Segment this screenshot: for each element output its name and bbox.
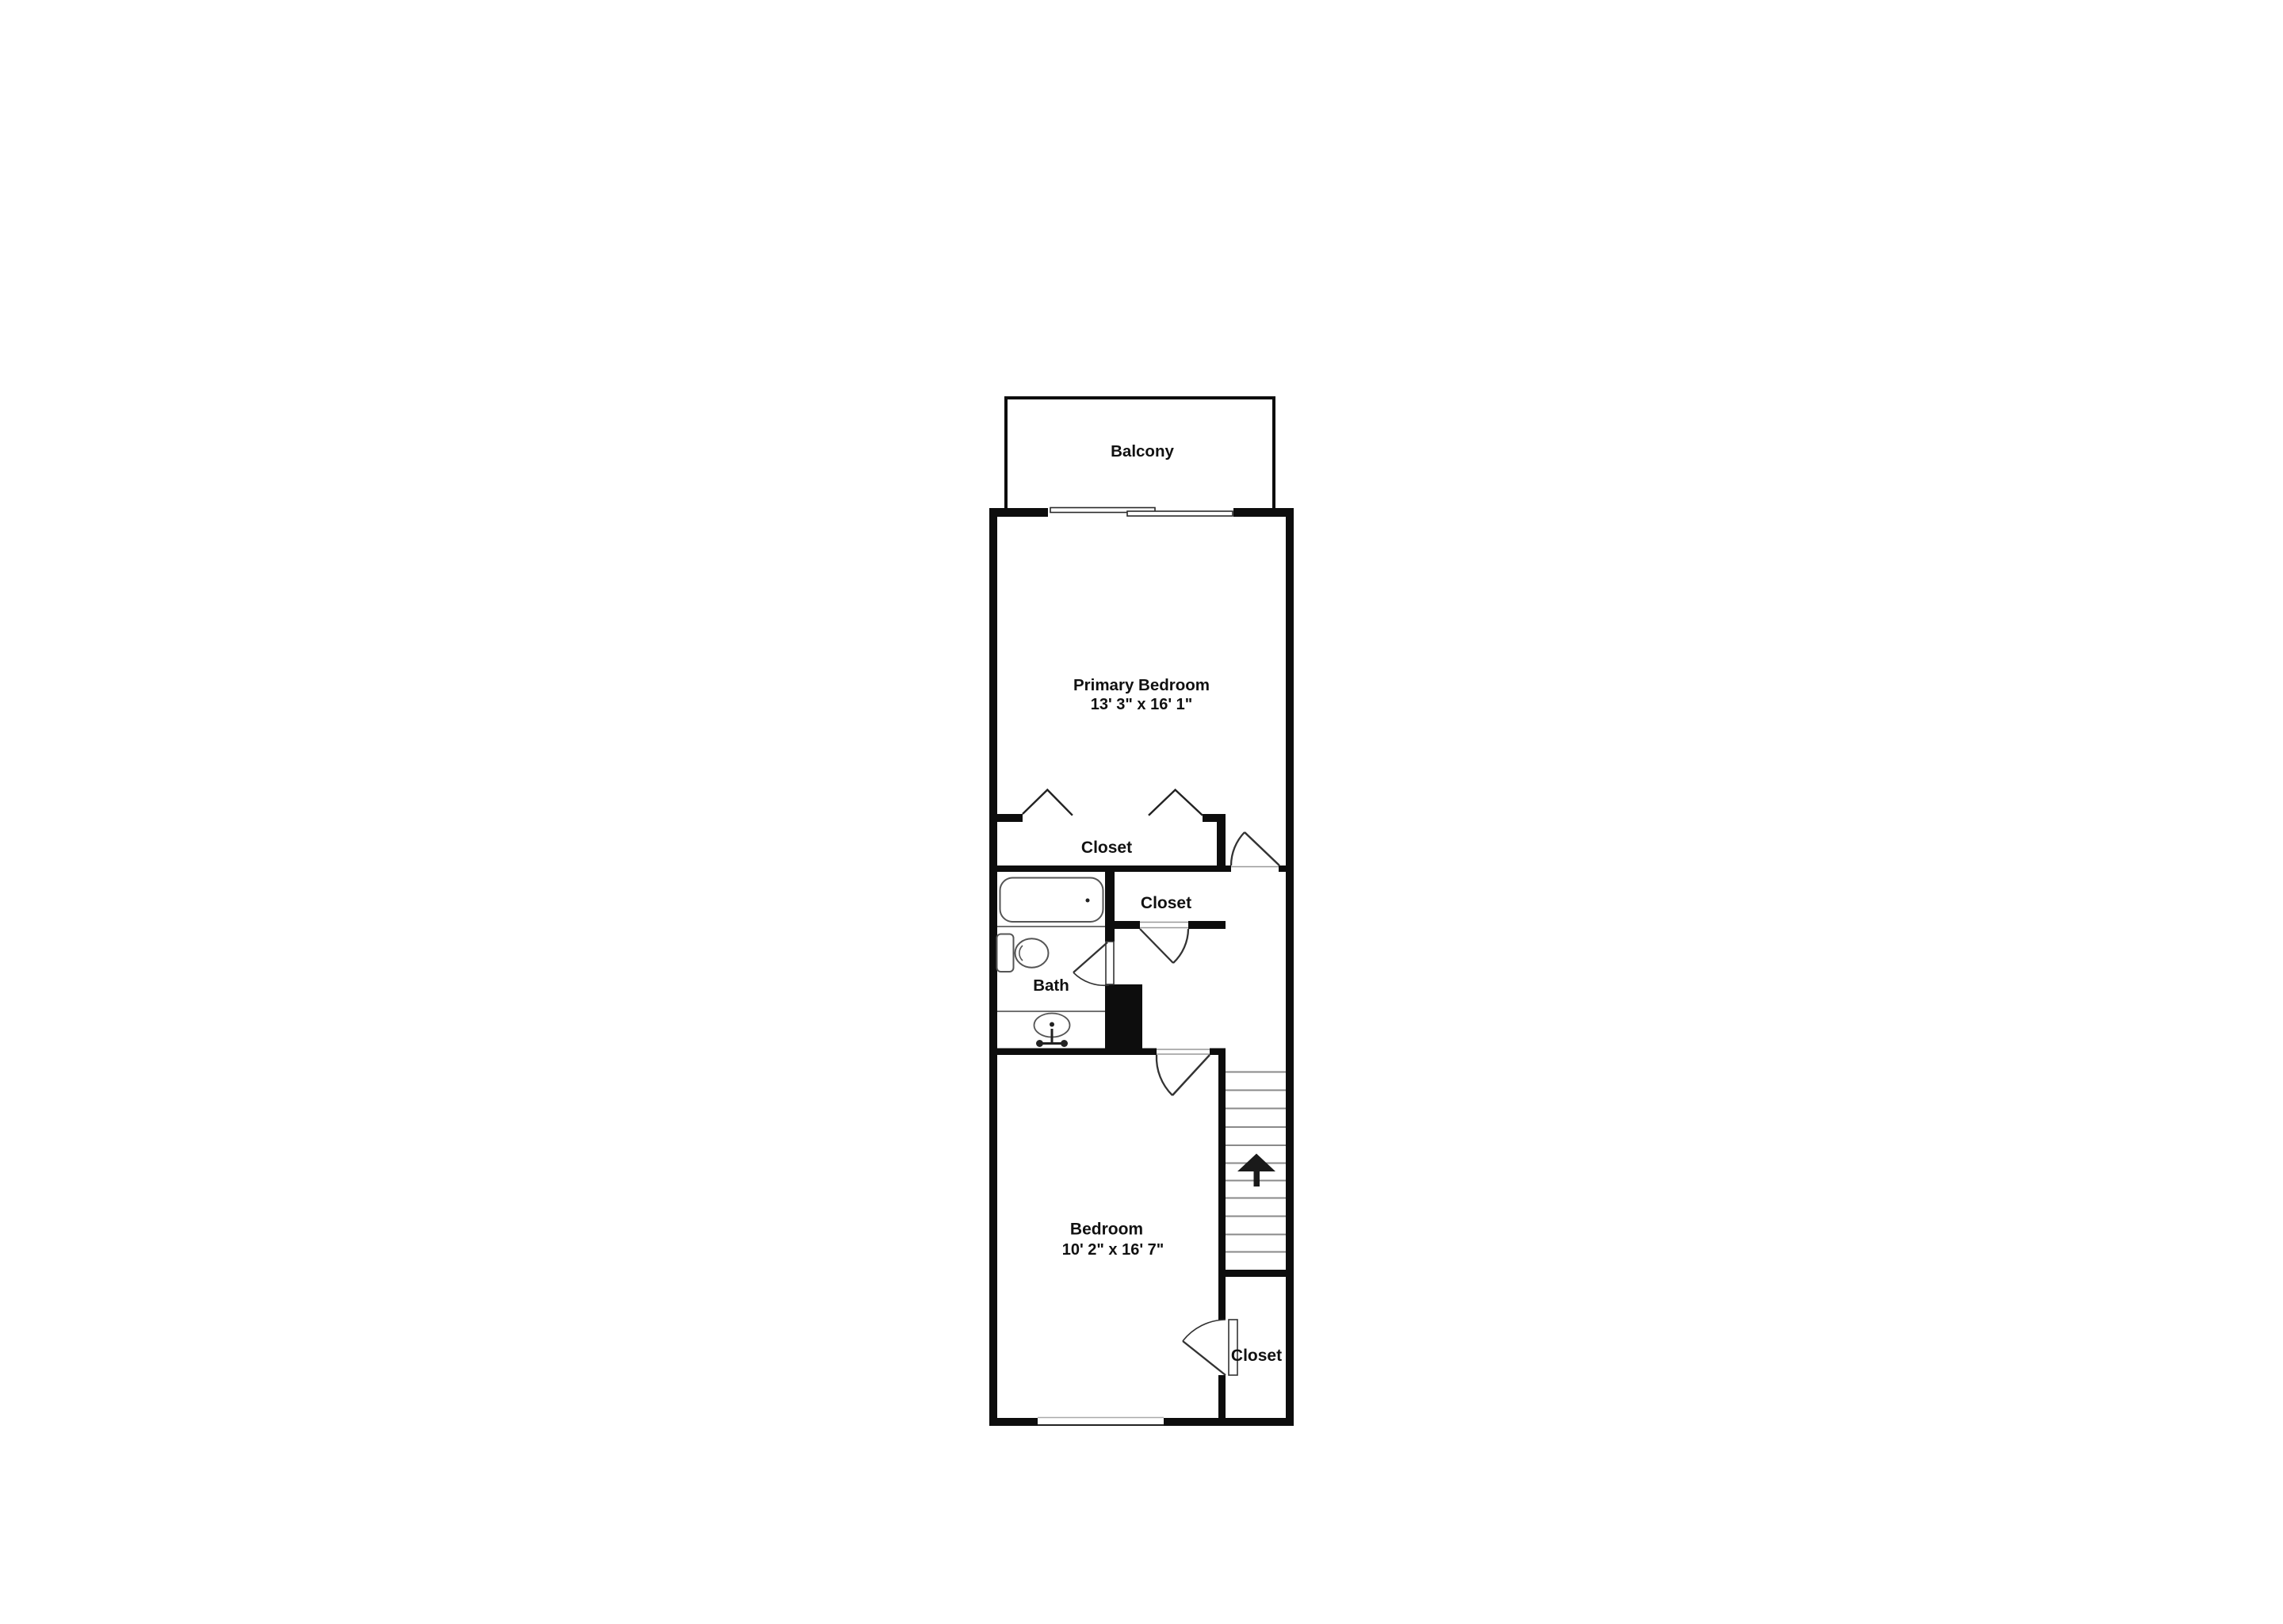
svg-text:Closet: Closet [1081, 839, 1132, 857]
svg-text:13' 3" x 16' 1": 13' 3" x 16' 1" [1091, 696, 1193, 713]
svg-text:Primary Bedroom: Primary Bedroom [1073, 676, 1210, 694]
svg-text:10' 2" x 16' 7": 10' 2" x 16' 7" [1062, 1241, 1164, 1259]
svg-text:Bedroom: Bedroom [1070, 1221, 1143, 1239]
svg-text:Bath: Bath [1033, 976, 1069, 995]
svg-text:Closet: Closet [1141, 894, 1191, 912]
svg-text:Balcony: Balcony [1111, 442, 1174, 460]
svg-text:Closet: Closet [1231, 1347, 1282, 1365]
